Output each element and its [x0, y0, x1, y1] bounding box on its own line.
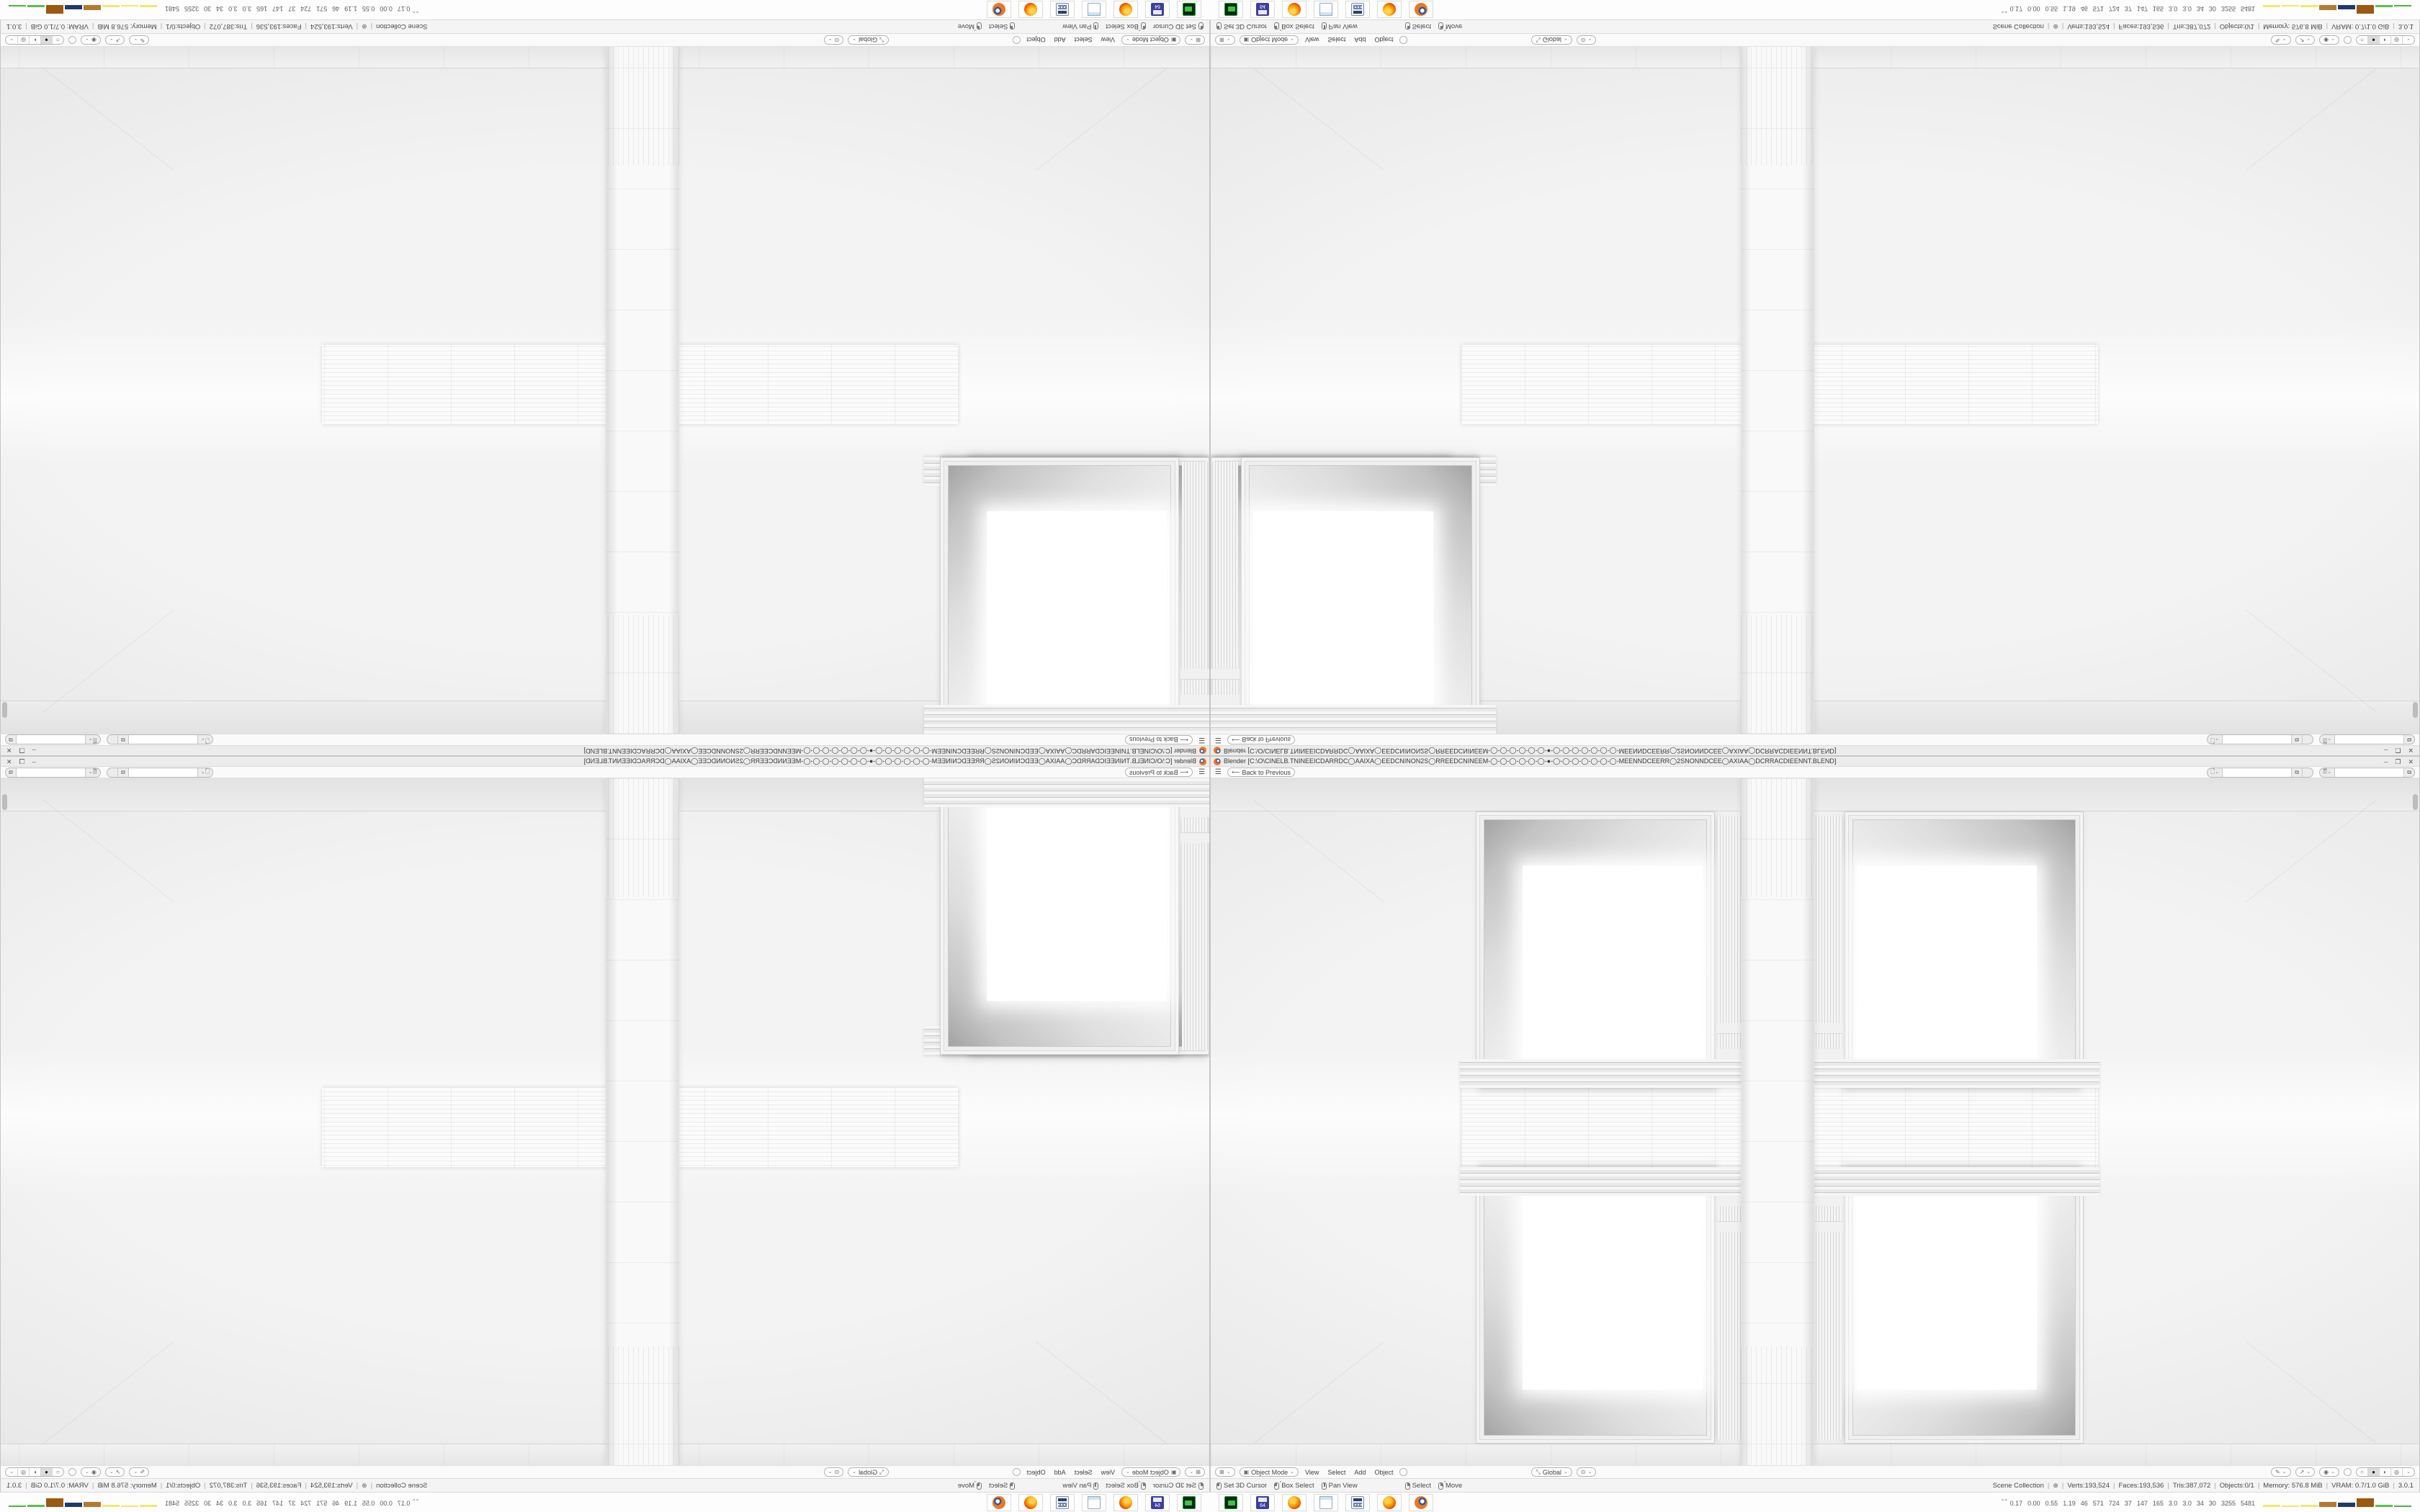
- hint-set-3d-cursor: Set 3D Cursor: [1153, 22, 1204, 30]
- taskbar-notepad-button[interactable]: [1314, 1494, 1338, 1511]
- view-layer-selector[interactable]: 🖺 ⌄ ⧉: [2319, 735, 2415, 745]
- shading-material-button[interactable]: ◐: [2380, 1468, 2391, 1476]
- shading-rendered-button[interactable]: ◎: [17, 36, 29, 44]
- floor-edge-line: [1253, 1341, 1384, 1444]
- snap-magnet-icon: ↗: [116, 1469, 121, 1475]
- menu-object[interactable]: Object: [1025, 1469, 1048, 1476]
- mouse-right-drag-icon: [1438, 1482, 1443, 1490]
- scene-unlink-segment[interactable]: [107, 736, 117, 744]
- orientation-label: Global: [1543, 37, 1561, 44]
- object-mode-icon: ▣: [1244, 1469, 1250, 1475]
- taskbar-hwinfo64-button[interactable]: [1250, 1, 1275, 19]
- scene-icon[interactable]: 🗋 ⌄: [197, 736, 212, 744]
- tray-expander-icon[interactable]: ⌃⌃: [413, 1498, 419, 1505]
- mouse-left-icon: [1198, 1482, 1204, 1490]
- stat-objects: Objects:0/1: [166, 1482, 200, 1490]
- blender-icon: [992, 4, 1005, 17]
- window-frame: [1241, 457, 1480, 734]
- taskbar-hwinfo64-button[interactable]: [1145, 1, 1170, 19]
- annotate-tool-button[interactable]: [1013, 1468, 1021, 1476]
- editor-type-button[interactable]: ⊞ ⌄: [1185, 1467, 1205, 1477]
- new-view-layer-button[interactable]: ⧉: [2404, 736, 2414, 744]
- restore-button[interactable]: ❐: [19, 747, 25, 755]
- hamburger-menu-icon[interactable]: ☰: [1198, 768, 1205, 777]
- tray-expander-icon[interactable]: ⌃⌃: [2000, 1498, 2007, 1505]
- menu-view[interactable]: View: [1303, 37, 1321, 44]
- annotate-tool-button[interactable]: [1399, 36, 1407, 44]
- taskbar-gpu-z-button[interactable]: [1219, 1, 1243, 19]
- shading-wireframe-button[interactable]: ○: [2357, 36, 2368, 44]
- overlays-toggle[interactable]: [2344, 1468, 2352, 1476]
- gizmo-selector[interactable]: ✎ ⌄: [129, 1467, 149, 1477]
- overlays-toggle[interactable]: [68, 36, 76, 44]
- chevron-down-icon[interactable]: ⌄: [2403, 1468, 2414, 1476]
- restore-button[interactable]: ❐: [2395, 747, 2401, 755]
- shading-mode-cluster: ○ ● ◐ ◎ ⌄: [5, 35, 64, 45]
- editor-type-button[interactable]: ⊞ ⌄: [1185, 35, 1205, 45]
- taskbar-icons: [1219, 1494, 1433, 1511]
- stat-tris: Tris:387,072: [2173, 22, 2210, 30]
- menu-view[interactable]: View: [1303, 1469, 1321, 1476]
- back-to-previous-button[interactable]: ⟵ Back to Previous: [1125, 768, 1193, 777]
- taskbar-icons: [1219, 1, 1433, 19]
- status-bar: Set 3D Cursor Box Select Pan View Select: [1211, 1478, 2419, 1493]
- proportional-editing-toggle[interactable]: ◉ ⌄: [2319, 35, 2339, 45]
- stat-verts: Verts:193,524: [310, 1482, 353, 1490]
- mode-selector[interactable]: ▣ Object Mode ⌄: [1121, 1467, 1180, 1477]
- pivot-icon: ⊙: [1581, 1469, 1586, 1475]
- shading-wireframe-button[interactable]: ○: [52, 36, 63, 44]
- view-layer-name-field[interactable]: [16, 736, 85, 744]
- viewport-3d[interactable]: [1, 778, 1209, 1465]
- window-title: Blender [C:\O\CINELB.TNINEEICDARRDC◯AAIX…: [1224, 757, 2381, 765]
- restore-button[interactable]: ❐: [2395, 758, 2401, 765]
- mode-selector[interactable]: ▣ Object Mode ⌄: [1240, 35, 1299, 45]
- new-view-layer-button[interactable]: ⧉: [6, 736, 16, 744]
- monitor-values: 0.170.000.551.1946571724371471653.03.034…: [2010, 5, 2260, 12]
- firefox-icon: [1288, 4, 1301, 17]
- chevron-down-icon[interactable]: ⌄: [6, 1468, 17, 1476]
- chevron-down-icon: ⌄: [85, 37, 89, 43]
- menu-select[interactable]: Select: [1072, 1469, 1095, 1476]
- view-layer-icon[interactable]: 🖺 ⌄: [85, 736, 100, 744]
- monitor-graph: [2263, 5, 2411, 17]
- taskbar: ⌃⌃ 0.170.000.551.1946571724371471653.03.…: [1210, 1492, 2420, 1512]
- chevron-down-icon[interactable]: ⌄: [2403, 36, 2414, 44]
- quadrant-original: Blender [C:\O\CINELB.TNINEEICDARRDC◯AAIX…: [0, 0, 1210, 756]
- chevron-down-icon: ⌄: [2306, 37, 2311, 43]
- scene-window-module: [1476, 1167, 1745, 1444]
- scene-unlink-segment[interactable]: [107, 768, 117, 777]
- orientation-label: Global: [1543, 1469, 1561, 1476]
- hint-set-3d-cursor: Set 3D Cursor: [1216, 22, 1267, 30]
- shading-wireframe-button[interactable]: ○: [2357, 1468, 2368, 1476]
- menu-add[interactable]: Add: [1352, 1469, 1368, 1476]
- view-layer-icon[interactable]: 🖺 ⌄: [85, 768, 100, 777]
- stat-tris: Tris:387,072: [210, 1482, 247, 1490]
- mouse-right-icon: [1010, 23, 1015, 30]
- menu-select[interactable]: Select: [1325, 1469, 1348, 1476]
- status-bar: Set 3D Cursor Box Select Pan View Select: [1211, 19, 2419, 34]
- cornice-slats: [1211, 705, 1496, 734]
- scene-name-field[interactable]: [128, 736, 197, 744]
- viewport-3d[interactable]: [1, 47, 1209, 734]
- close-button[interactable]: ✕: [6, 758, 12, 765]
- pillar-fluting: [1741, 1346, 1814, 1465]
- sidebar-toggle[interactable]: [2, 702, 7, 718]
- mouse-middle-icon: [1322, 23, 1327, 30]
- chevron-down-icon: ⌄: [1189, 37, 1193, 43]
- minimize-button[interactable]: –: [2384, 747, 2388, 755]
- pillar-fluting: [606, 615, 679, 734]
- taskbar-blender-button[interactable]: [987, 1, 1011, 19]
- shading-wireframe-button[interactable]: ○: [52, 1468, 63, 1476]
- window-frame: [1476, 1167, 1715, 1444]
- back-to-previous-label: Back to Previous: [1129, 737, 1178, 744]
- scene-window-top-left: [1476, 811, 1745, 1088]
- menu-view[interactable]: View: [1099, 1469, 1117, 1476]
- orientation-selector[interactable]: ⤡ Global ⌄: [848, 35, 888, 45]
- pivot-selector[interactable]: ⊙ ⌄: [824, 1467, 844, 1477]
- hint-select: Select: [1405, 1482, 1431, 1490]
- gpu-z-icon: [1224, 4, 1237, 17]
- shading-mode-cluster: ○ ● ◐ ◎ ⌄: [2356, 35, 2415, 45]
- gizmo-icon: ✎: [140, 1469, 145, 1475]
- snap-toggle[interactable]: ↗ ⌄: [2295, 1467, 2316, 1477]
- scene-selector[interactable]: 🗋 ⌄ ⧉: [2207, 735, 2313, 745]
- stat-version: 3.0.1: [6, 1482, 22, 1490]
- back-arrow-icon: ⟵: [1180, 737, 1188, 743]
- taskbar-hwinfo64-button[interactable]: [1145, 1494, 1170, 1511]
- viewport-3d[interactable]: [1211, 47, 2419, 734]
- mode-label: Object Mode: [1132, 37, 1169, 44]
- gpu-z-icon: [1183, 1496, 1196, 1509]
- quadrant-slot-top-left: Blender [C:\O\CINELB.TNINEEICDARRDC◯AAIX…: [0, 0, 1210, 756]
- hint-select: Select: [989, 1482, 1015, 1490]
- gizmo-selector[interactable]: ✎ ⌄: [129, 35, 149, 45]
- annotate-tool-button[interactable]: [1399, 1468, 1407, 1476]
- shading-material-button[interactable]: ◐: [29, 36, 40, 44]
- menu-object[interactable]: Object: [1372, 1469, 1395, 1476]
- title-bar[interactable]: Blender [C:\O\CINELB.TNINEEICDARRDC◯AAIX…: [1, 757, 1209, 767]
- gizmo-selector[interactable]: ✎ ⌄: [2271, 35, 2291, 45]
- tray-expander-icon[interactable]: ⌃⌃: [2000, 8, 2007, 14]
- minimize-button[interactable]: –: [32, 747, 36, 755]
- scene-collection-label: Scene Collection: [1993, 22, 2044, 30]
- fluted-pilaster: [1182, 462, 1208, 729]
- ceiling-edge-line: [43, 800, 174, 902]
- taskbar-hwinfo64-button[interactable]: [1250, 1494, 1275, 1511]
- shading-material-button[interactable]: ◐: [29, 1468, 40, 1476]
- new-view-layer-button[interactable]: ⧉: [2404, 768, 2414, 777]
- scene-name-field[interactable]: [128, 768, 197, 777]
- close-button[interactable]: ✕: [2408, 747, 2414, 755]
- hwinfo64-icon: [1256, 1496, 1269, 1509]
- hamburger-menu-icon[interactable]: ☰: [1198, 736, 1205, 744]
- view-layer-icon[interactable]: 🖺 ⌄: [2320, 736, 2335, 744]
- notepad-icon: [1319, 1496, 1332, 1509]
- window-frame: [940, 778, 1179, 1055]
- mouse-middle-icon: [1322, 1482, 1327, 1490]
- overlays-toggle[interactable]: [68, 1468, 76, 1476]
- globe-icon: ⊕: [362, 22, 367, 30]
- sidebar-toggle[interactable]: [2413, 702, 2418, 718]
- menu-object[interactable]: Object: [1372, 37, 1395, 44]
- orientation-label: Global: [859, 37, 877, 44]
- stat-version: 3.0.1: [6, 22, 22, 30]
- gizmo-selector[interactable]: ✎ ⌄: [2271, 1467, 2291, 1477]
- proportional-editing-toggle[interactable]: ◉ ⌄: [81, 35, 101, 45]
- ceiling-edge-line: [2246, 800, 2377, 902]
- shading-solid-button[interactable]: ●: [40, 36, 52, 44]
- firefox-icon: [1383, 1496, 1396, 1509]
- menu-add[interactable]: Add: [1052, 37, 1068, 44]
- scene-central-pillar: [1741, 47, 1814, 734]
- menu-object[interactable]: Object: [1025, 37, 1048, 44]
- floor-edge-line: [1253, 68, 1384, 171]
- taskbar-gpu-z-button[interactable]: [1219, 1494, 1243, 1511]
- scene-icon[interactable]: 🗋 ⌄: [2208, 768, 2223, 777]
- back-to-previous-button[interactable]: ⟵ Back to Previous: [1125, 735, 1193, 744]
- pillar-fluting: [1741, 778, 1814, 897]
- mode-selector[interactable]: ▣ Object Mode ⌄: [1240, 1467, 1299, 1477]
- cornice-slats: [924, 705, 1209, 734]
- taskbar-firefox-button[interactable]: [1113, 1494, 1138, 1511]
- window-controls: – ❐ ✕: [2384, 747, 2416, 755]
- shading-rendered-button[interactable]: ◎: [17, 1468, 29, 1476]
- taskbar-notepad-button[interactable]: [1082, 1, 1106, 19]
- stat-vram: VRAM: 0.7/1.0 GiB: [2331, 22, 2389, 30]
- title-bar[interactable]: Blender [C:\O\CINELB.TNINEEICDARRDC◯AAIX…: [1211, 745, 2419, 755]
- editor-type-button[interactable]: ⊞ ⌄: [1215, 35, 1235, 45]
- taskbar-firefox2-button[interactable]: [1018, 1494, 1043, 1511]
- scene-unlink-segment[interactable]: [2303, 736, 2313, 744]
- blender-window: Blender [C:\O\CINELB.TNINEEICDARRDC◯AAIX…: [1210, 756, 2420, 1492]
- fluted-pilaster: [1182, 783, 1208, 1050]
- taskbar-firefox-button[interactable]: [1282, 1, 1307, 19]
- chevron-down-icon: ⌄: [852, 37, 856, 43]
- scene-window-module: [1814, 811, 2084, 1088]
- cornice-slats: [1460, 1167, 1745, 1196]
- editor-type-icon: ⊞: [1196, 1469, 1201, 1475]
- view-layer-selector[interactable]: 🖺 ⌄ ⧉: [5, 735, 101, 745]
- pivot-selector[interactable]: ⊙ ⌄: [1577, 35, 1597, 45]
- tray-expander-icon[interactable]: ⌃⌃: [413, 8, 419, 14]
- minimize-button[interactable]: –: [32, 758, 36, 765]
- taskbar: ⌃⌃ 0.170.000.551.1946571724371471653.03.…: [0, 1492, 1210, 1512]
- stat-vram: VRAM: 0.7/1.0 GiB: [2331, 1482, 2389, 1490]
- taskbar-blender-button[interactable]: [987, 1494, 1011, 1511]
- snap-toggle[interactable]: ↗ ⌄: [2295, 35, 2316, 45]
- taskbar-gpu-z-button[interactable]: [1177, 1, 1201, 19]
- pillar-fluting: [606, 1346, 679, 1465]
- mouse-middle-icon: [1093, 1482, 1098, 1490]
- shading-rendered-button[interactable]: ◎: [2391, 1468, 2403, 1476]
- taskbar-blender-button[interactable]: [1409, 1494, 1433, 1511]
- mouse-left-icon: [1198, 23, 1204, 30]
- menu-select[interactable]: Select: [1325, 37, 1348, 44]
- blender-icon: [1415, 4, 1428, 17]
- menu-add[interactable]: Add: [1352, 37, 1368, 44]
- snap-toggle[interactable]: ↗ ⌄: [105, 1467, 125, 1477]
- status-bar: Set 3D Cursor Box Select Pan View Select: [1, 1478, 1209, 1493]
- scene-icon[interactable]: 🗋 ⌄: [2208, 736, 2223, 744]
- stat-memory: Memory: 576.8 MiB: [97, 1482, 156, 1490]
- stat-verts: Verts:193,524: [2067, 1482, 2110, 1490]
- scene-stats: Scene Collection | ⊕ | Verts:193,524| Fa…: [6, 22, 427, 30]
- monitor-values: 0.170.000.551.1946571724371471653.03.034…: [160, 1500, 410, 1507]
- chevron-down-icon[interactable]: ⌄: [6, 36, 17, 44]
- chevron-down-icon: ⌄: [2282, 37, 2287, 43]
- snap-toggle[interactable]: ↗ ⌄: [105, 35, 125, 45]
- scene-window-bottom-right: [1211, 457, 1480, 734]
- new-view-layer-button[interactable]: ⧉: [6, 768, 16, 777]
- scene-central-pillar: [606, 778, 679, 1465]
- view-layer-selector[interactable]: 🖺 ⌄ ⧉: [2319, 768, 2415, 778]
- notepad-icon: [1088, 4, 1101, 17]
- hamburger-menu-icon[interactable]: ☰: [1215, 736, 1222, 744]
- notepad-icon: [1088, 1496, 1101, 1509]
- firefox-icon: [1383, 4, 1396, 17]
- floor-edge-line: [2246, 1341, 2377, 1444]
- scene-window-bottom-right: [940, 778, 1209, 1055]
- pivot-selector[interactable]: ⊙ ⌄: [824, 35, 844, 45]
- sidebar-toggle[interactable]: [2413, 794, 2418, 810]
- orientation-selector[interactable]: ⤡ Global ⌄: [848, 1467, 888, 1477]
- pillar-fluting: [606, 778, 679, 897]
- taskbar-calculator-button[interactable]: [1345, 1, 1370, 19]
- scene-selector[interactable]: 🗋 ⌄ ⧉: [107, 768, 213, 778]
- stat-tris: Tris:387,072: [210, 22, 247, 30]
- close-button[interactable]: ✕: [6, 747, 12, 755]
- view-layer-name-field[interactable]: [2335, 736, 2404, 744]
- orientation-selector[interactable]: ⤡ Global ⌄: [1531, 35, 1572, 45]
- new-scene-button[interactable]: ⧉: [2292, 768, 2303, 777]
- scene-selector[interactable]: 🗋 ⌄ ⧉: [2207, 768, 2313, 778]
- hint-pan-view: Pan View: [1062, 22, 1098, 30]
- mouse-left-drag-icon: [1274, 1482, 1279, 1490]
- hint-pan-view: Pan View: [1062, 1482, 1098, 1490]
- scene-unlink-segment[interactable]: [2303, 768, 2313, 777]
- orientation-selector[interactable]: ⤡ Global ⌄: [1531, 1467, 1572, 1477]
- view-layer-name-field[interactable]: [16, 768, 85, 777]
- chevron-down-icon: ⌄: [85, 1470, 89, 1475]
- scene-name-field[interactable]: [2223, 768, 2292, 777]
- menu-add[interactable]: Add: [1052, 1469, 1068, 1476]
- cornice-slats: [1814, 1059, 2099, 1088]
- title-bar[interactable]: Blender [C:\O\CINELB.TNINEEICDARRDC◯AAIX…: [1211, 757, 2419, 767]
- shading-solid-button[interactable]: ●: [40, 1468, 52, 1476]
- taskbar-gpu-z-button[interactable]: [1177, 1494, 1201, 1511]
- object-mode-icon: ▣: [1171, 37, 1177, 43]
- editor-type-button[interactable]: ⊞ ⌄: [1215, 1467, 1235, 1477]
- pivot-selector[interactable]: ⊙ ⌄: [1577, 1467, 1597, 1477]
- status-bar: Set 3D Cursor Box Select Pan View Select: [1, 19, 1209, 34]
- pillar-fluting: [1741, 615, 1814, 734]
- mode-selector[interactable]: ▣ Object Mode ⌄: [1121, 35, 1180, 45]
- chevron-down-icon: ⌄: [828, 1470, 833, 1475]
- hamburger-menu-icon[interactable]: ☰: [1215, 768, 1222, 777]
- window-glow: [987, 511, 1167, 710]
- blender-logo-icon: [1199, 758, 1206, 765]
- hwinfo64-icon: [1151, 4, 1164, 17]
- shading-solid-button[interactable]: ●: [2368, 1468, 2380, 1476]
- shading-material-button[interactable]: ◐: [2380, 36, 2391, 44]
- view-layer-selector[interactable]: 🖺 ⌄ ⧉: [5, 768, 101, 778]
- mouse-left-drag-icon: [1141, 23, 1146, 30]
- firefox-icon: [1119, 1496, 1132, 1509]
- minimize-button[interactable]: –: [2384, 758, 2388, 765]
- proportional-editing-toggle[interactable]: ◉ ⌄: [81, 1467, 101, 1477]
- mouse-left-drag-icon: [1141, 1482, 1146, 1490]
- menu-select[interactable]: Select: [1072, 37, 1095, 44]
- proportional-editing-toggle[interactable]: ◉ ⌄: [2319, 1467, 2339, 1477]
- menu-view[interactable]: View: [1099, 37, 1117, 44]
- taskbar-notepad-button[interactable]: [1082, 1494, 1106, 1511]
- taskbar-notepad-button[interactable]: [1314, 1, 1338, 19]
- taskbar-calculator-button[interactable]: [1050, 1, 1075, 19]
- taskbar-firefox-button[interactable]: [1113, 1, 1138, 19]
- scene-collection-label: Scene Collection: [376, 22, 427, 30]
- cornice-slats: [924, 778, 1209, 807]
- new-scene-button[interactable]: ⧉: [117, 736, 128, 744]
- scene-ceiling: [1211, 778, 2419, 811]
- view-layer-name-field[interactable]: [2335, 768, 2404, 777]
- taskbar-firefox2-button[interactable]: [1377, 1, 1402, 19]
- scene-selector[interactable]: 🗋 ⌄ ⧉: [107, 735, 213, 745]
- title-bar[interactable]: Blender [C:\O\CINELB.TNINEEICDARRDC◯AAIX…: [1, 745, 1209, 755]
- taskbar-blender-button[interactable]: [1409, 1, 1433, 19]
- new-scene-button[interactable]: ⧉: [117, 768, 128, 777]
- restore-button[interactable]: ❐: [19, 758, 25, 765]
- ceiling-edge-line: [1253, 800, 1384, 902]
- chevron-down-icon: ⌄: [1564, 37, 1568, 43]
- window-frame: [1476, 811, 1715, 1088]
- hint-pan-view: Pan View: [1322, 22, 1358, 30]
- taskbar-calculator-button[interactable]: [1345, 1494, 1370, 1511]
- taskbar-calculator-button[interactable]: [1050, 1494, 1075, 1511]
- monitor-graph: [9, 5, 157, 17]
- scene-window-bottom-right: [940, 457, 1209, 734]
- back-to-previous-button[interactable]: ⟵ Back to Previous: [1227, 768, 1295, 777]
- stat-verts: Verts:193,524: [310, 22, 353, 30]
- shading-rendered-button[interactable]: ◎: [2391, 36, 2403, 44]
- scene-name-field[interactable]: [2223, 736, 2292, 744]
- viewport-3d[interactable]: [1211, 778, 2419, 1465]
- hint-move: Move: [1438, 22, 1462, 30]
- sidebar-toggle[interactable]: [2, 794, 7, 810]
- view-layer-icon[interactable]: 🖺 ⌄: [2320, 768, 2335, 777]
- taskbar-firefox2-button[interactable]: [1377, 1494, 1402, 1511]
- hint-box-select: Box Select: [1106, 22, 1145, 30]
- close-button[interactable]: ✕: [2408, 758, 2414, 765]
- scene-collection-label: Scene Collection: [1993, 1482, 2044, 1490]
- overlays-toggle[interactable]: [2344, 36, 2352, 44]
- taskbar-firefox2-button[interactable]: [1018, 1, 1043, 19]
- viewport-header: ⊞ ⌄ ▣ Object Mode ⌄ View Select Add Obje…: [1211, 1465, 2419, 1478]
- orientation-icon: ⤡: [1536, 37, 1540, 43]
- annotate-tool-button[interactable]: [1013, 36, 1021, 44]
- scene-icon[interactable]: 🗋 ⌄: [197, 768, 212, 777]
- shading-solid-button[interactable]: ●: [2368, 36, 2380, 44]
- taskbar-icons: [987, 1494, 1201, 1511]
- new-scene-button[interactable]: ⧉: [2292, 736, 2303, 744]
- orientation-label: Global: [859, 1469, 877, 1476]
- back-to-previous-button[interactable]: ⟵ Back to Previous: [1227, 735, 1295, 744]
- taskbar-firefox-button[interactable]: [1282, 1494, 1307, 1511]
- stat-version: 3.0.1: [2398, 22, 2414, 30]
- cornice-slats: [1814, 1167, 2099, 1196]
